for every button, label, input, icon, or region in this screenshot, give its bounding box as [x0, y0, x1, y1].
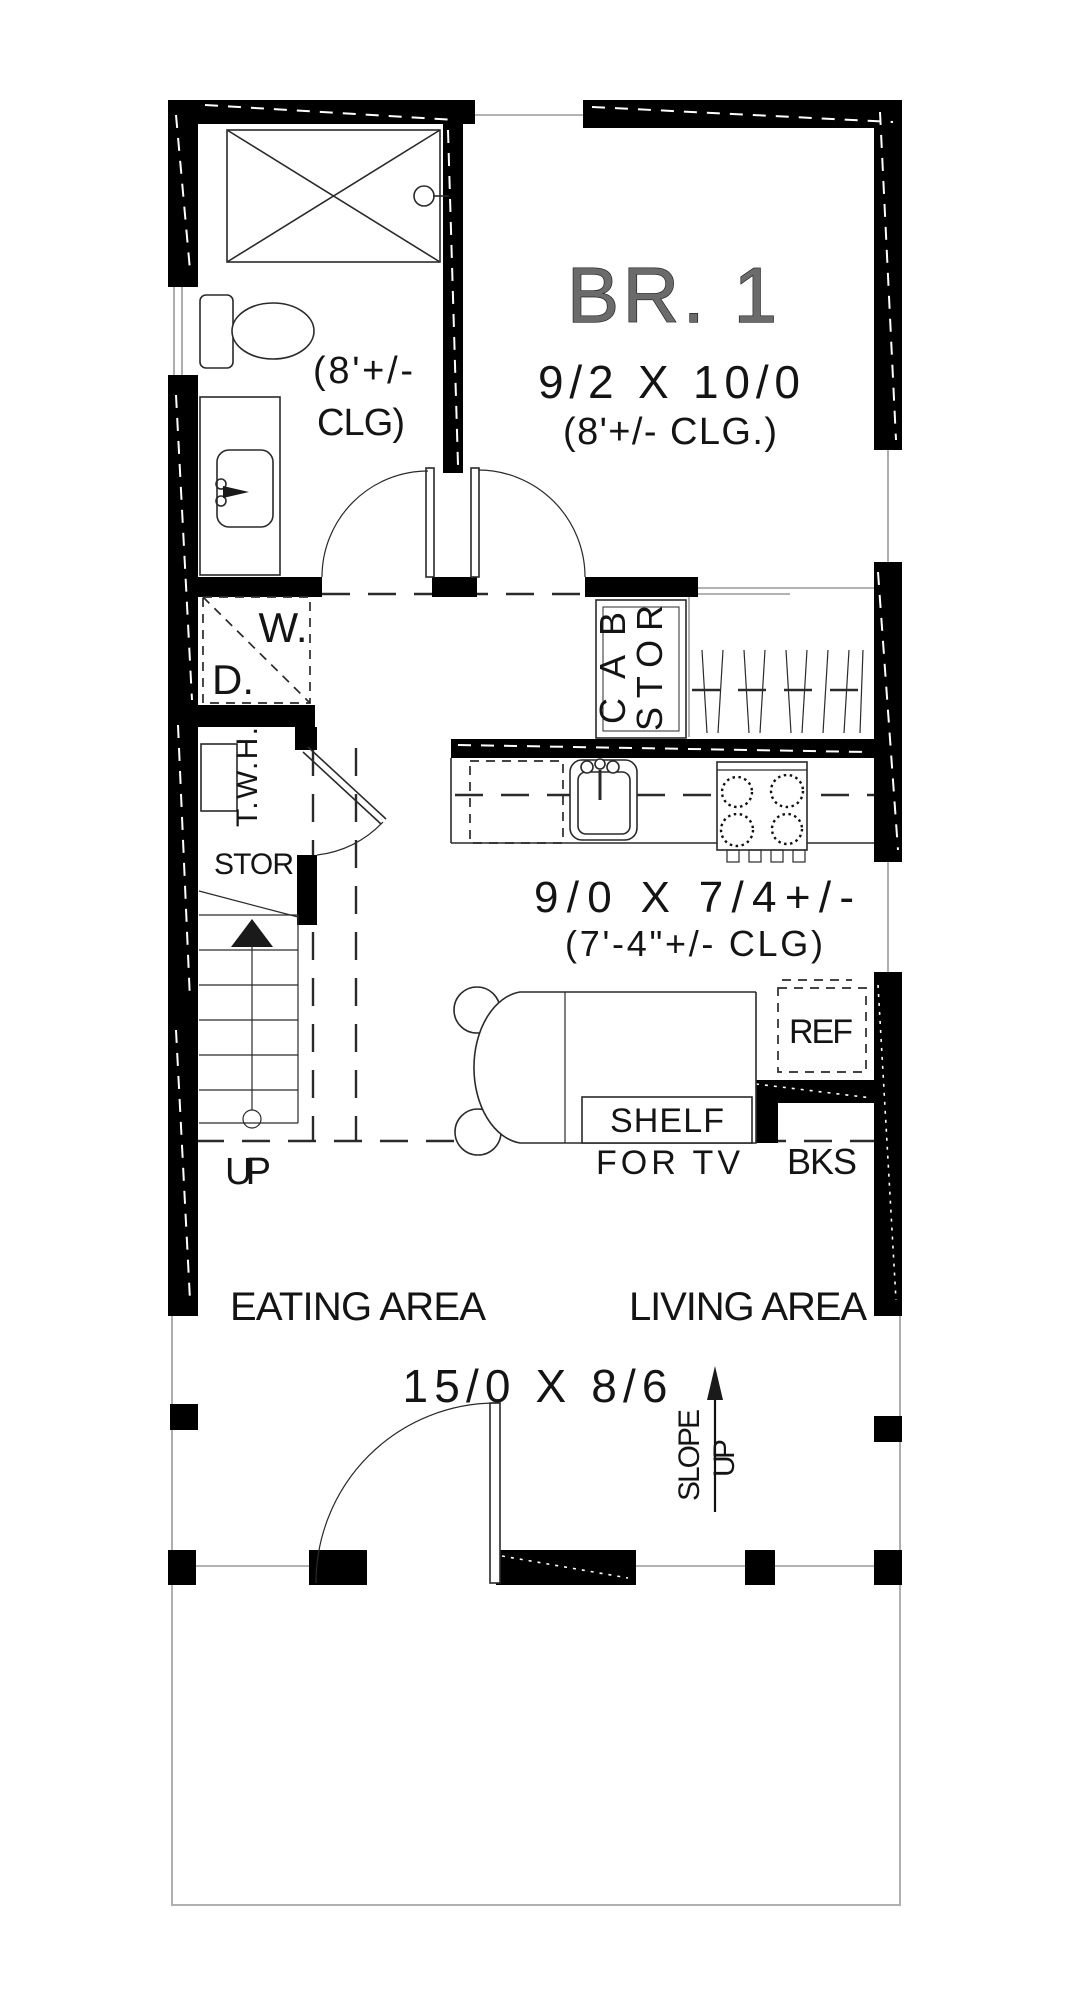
upper-stairs [702, 650, 863, 733]
living-area-label: LIVING AREA [629, 1285, 867, 1329]
shelf-label: SHELF [610, 1102, 724, 1140]
toilet-fixture [200, 295, 314, 368]
stor-door [303, 747, 386, 855]
kitchen-dimension: 9/0 X 7/4+/- [534, 873, 854, 922]
patio-outline [172, 1585, 900, 1905]
bath-ceiling-note-line1: (8'+/- [313, 350, 413, 392]
bedroom-title: BR. 1 [567, 251, 777, 339]
stove-fixture [717, 762, 807, 862]
kitchen-sink-fixture [570, 759, 637, 840]
main-room-dimension: 15/0 X 8/6 [403, 1360, 668, 1412]
washer-label: W. [259, 604, 308, 651]
dishwasher-box [470, 761, 563, 843]
bedroom-dimension: 9/2 X 10/0 [538, 356, 800, 408]
eating-area-label: EATING AREA [230, 1285, 486, 1329]
slope-up-label: UP [708, 1439, 741, 1477]
kitchen-ceiling-note: (7'-4"+/- CLG) [565, 923, 823, 964]
bathroom-door [322, 468, 434, 577]
slope-label: SLOPE [673, 1409, 706, 1501]
floor-plan-page: BR. 1 9/2 X 10/0 (8'+/- CLG.) (8'+/- CLG… [0, 0, 1065, 2000]
kitchen-counter [451, 758, 874, 843]
slope-up-arrow-icon [707, 1366, 723, 1512]
up-arrow-icon [231, 919, 273, 947]
bedroom-door [471, 468, 585, 577]
bathroom-sink-fixture [200, 397, 280, 575]
dryer-label: D. [212, 656, 254, 703]
floor-plan-svg: BR. 1 9/2 X 10/0 (8'+/- CLG.) (8'+/- CLG… [0, 0, 1065, 2000]
cab-stor-label-line2: STOR [629, 605, 670, 731]
cab-stor-label-line1: CAB [592, 612, 633, 724]
bath-ceiling-note-line2: CLG) [317, 402, 405, 444]
storage-label: STOR [214, 848, 294, 881]
lower-stairs [199, 891, 298, 1128]
refrigerator-label: REF [789, 1013, 853, 1051]
shower-fixture [227, 130, 449, 262]
for-tv-label: FOR TV [596, 1144, 740, 1182]
water-heater-label: T.W.H. [231, 727, 264, 827]
bedroom-ceiling-note: (8'+/- CLG.) [563, 411, 777, 453]
stairs-up-label: UP [225, 1151, 271, 1193]
bookshelf-label: BKS [787, 1141, 857, 1182]
